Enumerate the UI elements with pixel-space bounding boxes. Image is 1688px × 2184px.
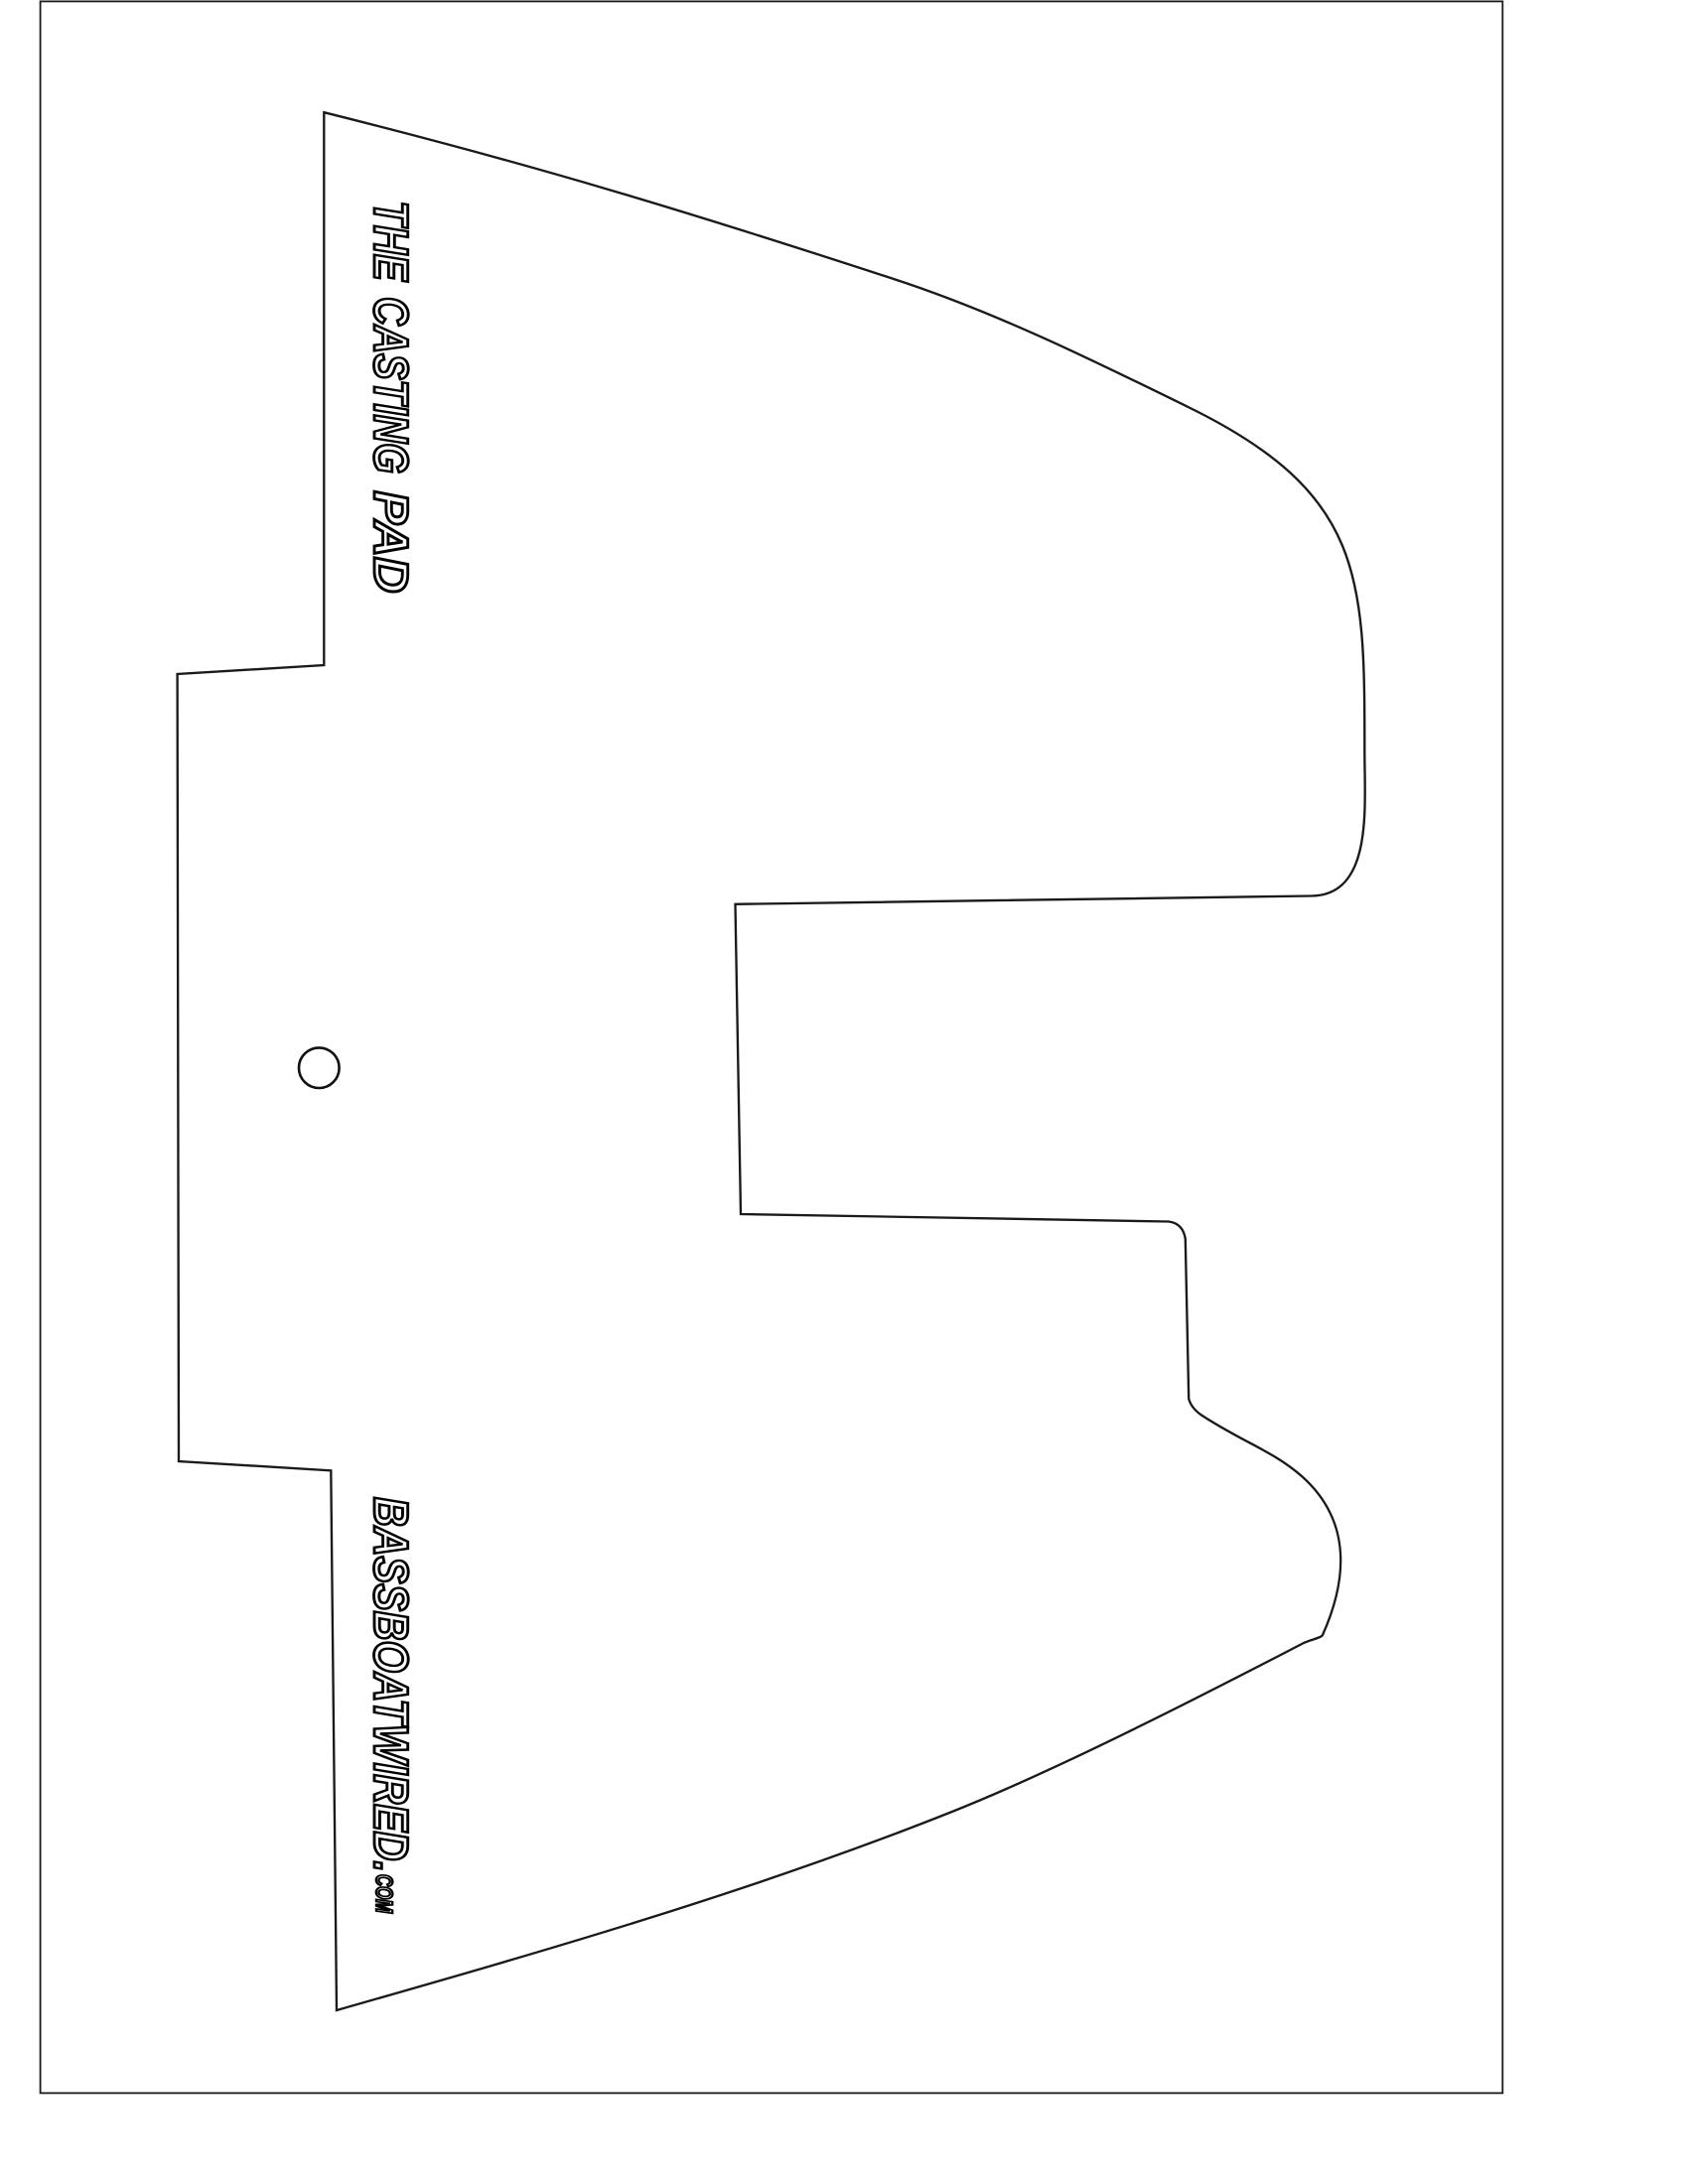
svg-text:COM: COM — [371, 1874, 397, 1913]
svg-text:THE: THE — [363, 201, 417, 282]
svg-text:BASSBOATWIRED.: BASSBOATWIRED. — [363, 1497, 417, 1872]
svg-text:CASTING: CASTING — [363, 297, 417, 474]
svg-text:PAD: PAD — [363, 490, 417, 593]
